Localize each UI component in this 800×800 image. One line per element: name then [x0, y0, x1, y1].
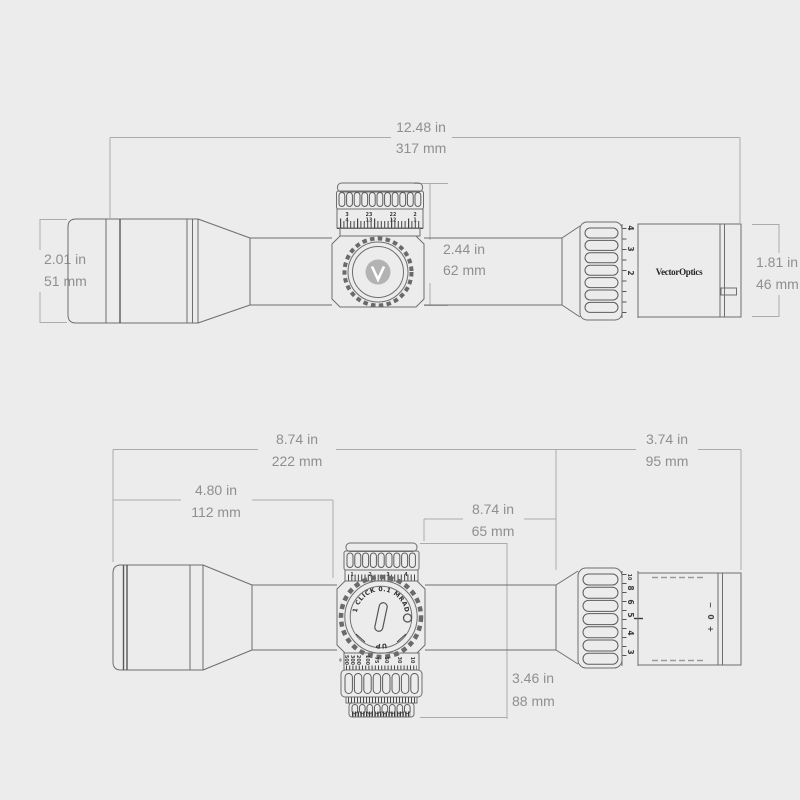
elevation-label: 2 [413, 212, 416, 218]
turret-click-label: 1 CLICK 0.1 MRAD [352, 586, 410, 613]
dimension-objective-section: 4.80 in 112 mm [113, 482, 333, 578]
eyepiece-end-cap [720, 224, 741, 317]
up-arrow-marks [356, 634, 406, 642]
elevation-label: 12 [390, 218, 397, 224]
side-focus-knob [345, 239, 412, 306]
dimension-turret-span: 3.46 in 88 mm [420, 543, 555, 719]
mag-number: 6 [626, 599, 635, 604]
dimension-front-mm: 222 mm [272, 453, 323, 469]
dimension-objective-diameter: 2.01 in 51 mm [40, 219, 87, 323]
parallax-label: 100 [364, 655, 370, 666]
parallax-label: ∞ [337, 658, 342, 662]
elevation-label: 23 [366, 212, 373, 218]
turret-up-label: UP [375, 642, 388, 651]
mag-number: 5 [626, 612, 635, 617]
windage-label: 1 [350, 572, 353, 578]
eyepiece-end-cap-top [718, 573, 741, 665]
diagram-canvas: 12.48 in 317 mm 2.01 in 51 mm 1.81 in 46… [0, 0, 800, 800]
eyepiece-texture [652, 578, 706, 661]
mag-number: 8 [626, 585, 635, 590]
elevation-label: 13 [366, 218, 373, 224]
eyepiece-assembly: 4 3 2 VectorOptics [562, 222, 741, 320]
dimension-turret-height-in: 2.44 in [443, 241, 485, 257]
dimension-turret-height-mm: 62 mm [443, 262, 486, 278]
objective-bell-top [113, 565, 203, 670]
side-view: 12.48 in 317 mm 2.01 in 51 mm 1.81 in 46… [40, 119, 799, 323]
dimension-eyepiece-section-mm: 95 mm [646, 453, 689, 469]
parallax-stack: ∞ 500 300 200 100 75 50 30 10 [337, 653, 422, 717]
magnification-ring-ribs-top [583, 574, 618, 664]
mag-number: 4 [626, 225, 635, 230]
dimension-eyepiece-mm: 46 mm [756, 276, 799, 292]
dimension-turret-span-mm: 88 mm [512, 693, 555, 709]
diopter-label: + [706, 626, 715, 632]
magnification-numbers-top: 10 8 6 5 4 3 [626, 574, 635, 655]
dimension-turret-height: 2.44 in 62 mm [414, 183, 486, 306]
dimension-objective-section-in: 4.80 in [195, 482, 237, 498]
svg-text:1 CLICK 0.1 MRAD: 1 CLICK 0.1 MRAD [352, 586, 410, 613]
parallax-label: 300 [349, 655, 355, 666]
turret-knob-top-view: 1 CLICK 0.1 MRAD UP [341, 577, 421, 657]
end-cap-notch [721, 288, 737, 295]
dimension-saddle-mm: 65 mm [472, 523, 515, 539]
elevation-knurling [339, 193, 421, 207]
parallax-label: 10 [409, 657, 415, 664]
lock-button [404, 614, 412, 622]
objective-bell [68, 219, 198, 323]
eyepiece-assembly-top: 10 8 6 5 4 3 − 0 + [556, 568, 741, 668]
parallax-label: 500 [343, 655, 349, 666]
elevation-label: 22 [390, 212, 397, 218]
dimension-turret-span-in: 3.46 in [512, 670, 554, 686]
parallax-label: 75 [373, 657, 379, 664]
dimension-saddle-in: 8.74 in [472, 501, 514, 517]
diopter-scale: − 0 + [706, 602, 715, 632]
coin-slot [374, 602, 388, 632]
svg-text:UP: UP [375, 642, 388, 651]
magnification-ring-ribs [585, 228, 618, 312]
magnification-numbers: 4 3 2 [626, 225, 635, 275]
dimension-eyepiece-section-in: 3.74 in [646, 431, 688, 447]
dimension-front-in: 8.74 in [276, 431, 318, 447]
dimension-eyepiece-in: 1.81 in [756, 254, 798, 270]
scope-dimension-diagram: 12.48 in 317 mm 2.01 in 51 mm 1.81 in 46… [0, 0, 800, 800]
dimension-total-length: 12.48 in 317 mm [110, 119, 740, 223]
dimension-total-length-in: 12.48 in [396, 119, 446, 135]
parallax-scale: ∞ 500 300 200 100 75 50 30 10 [337, 655, 417, 668]
mag-number: 4 [626, 630, 635, 635]
parallax-knurling [345, 674, 418, 694]
dimension-eyepiece-section: 3.74 in 95 mm [556, 431, 741, 570]
elevation-scale: 3 23 22 2 4 13 12 1 [337, 212, 423, 229]
parallax-label: 50 [383, 657, 389, 664]
elevation-label: 1 [413, 218, 416, 224]
mag-number: 3 [626, 246, 635, 251]
mag-number: 3 [626, 649, 635, 654]
parallax-label: 30 [396, 657, 402, 664]
elevation-turret: 3 23 22 2 4 13 12 1 [337, 183, 424, 236]
brand-logo-text: VectorOptics [656, 267, 703, 277]
dimension-objective-mm: 51 mm [44, 273, 87, 289]
dimension-objective-section-mm: 112 mm [191, 504, 241, 520]
windage-knurling [347, 553, 415, 568]
mag-number: 10 [626, 574, 632, 581]
diopter-label: − [706, 602, 715, 608]
elevation-label: 3 [345, 212, 348, 218]
parallax-knurl-ring [341, 670, 422, 697]
elevation-label: 4 [345, 218, 349, 224]
eyepiece-body-top [638, 573, 718, 665]
parallax-label: 200 [355, 655, 361, 666]
mag-number: 2 [626, 270, 635, 275]
dimension-total-length-mm: 317 mm [396, 140, 447, 156]
diopter-label: 0 [706, 614, 715, 619]
dimension-eyepiece-diameter: 1.81 in 46 mm [752, 224, 799, 317]
dimension-saddle-section: 8.74 in 65 mm [424, 501, 556, 541]
dimension-objective-in: 2.01 in [44, 251, 86, 267]
top-down-view: 8.74 in 222 mm 3.74 in 95 mm 4.80 in 112… [113, 431, 741, 719]
